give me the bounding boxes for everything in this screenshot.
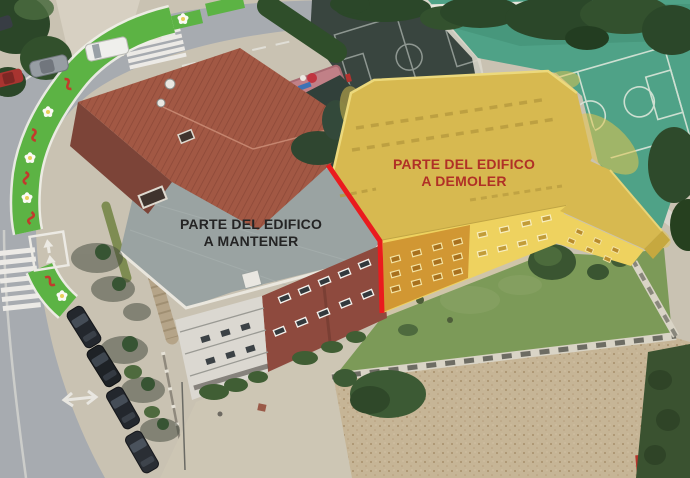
keep-label-line2: A MANTENER — [204, 233, 299, 249]
chimney — [165, 79, 175, 89]
demolish-label-line2: A DEMOLER — [421, 173, 506, 189]
lawn-spot — [447, 317, 453, 323]
bush — [144, 406, 160, 418]
bush — [124, 365, 142, 379]
play-structure-red — [307, 73, 317, 83]
play-structure-white — [300, 75, 306, 81]
bush — [587, 264, 609, 280]
aerial-demolition-plan: PARTE DEL EDIFICO A MANTENER PARTE DEL E… — [0, 0, 690, 478]
chimney — [157, 99, 165, 107]
keep-label-line1: PARTE DEL EDIFICO — [180, 216, 322, 232]
aerial-scene: PARTE DEL EDIFICO A MANTENER PARTE DEL E… — [0, 0, 690, 478]
bush — [398, 324, 418, 336]
manhole — [218, 412, 223, 417]
demolish-label-line1: PARTE DEL EDIFICO — [393, 156, 535, 172]
